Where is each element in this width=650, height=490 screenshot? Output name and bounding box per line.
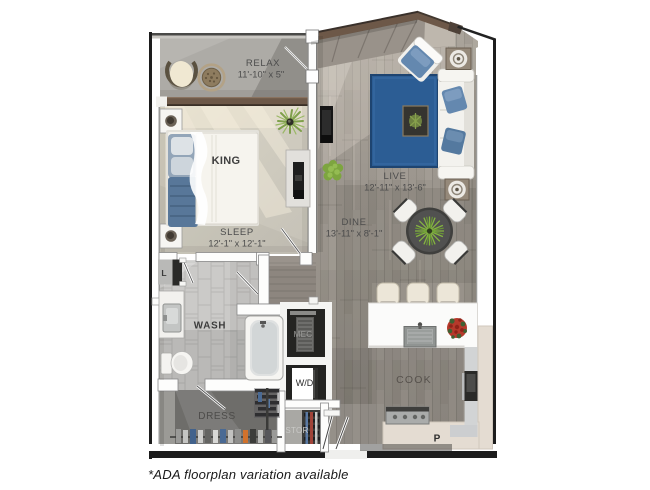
svg-text:P: P: [434, 434, 441, 445]
svg-text:W/D: W/D: [296, 378, 314, 388]
svg-text:*ADA floorplan variation avail: *ADA floorplan variation available: [148, 467, 349, 482]
svg-text:WASH: WASH: [194, 321, 227, 332]
svg-text:DRESS: DRESS: [198, 411, 235, 422]
svg-text:DINE: DINE: [341, 217, 366, 228]
svg-text:LIVE: LIVE: [384, 171, 407, 182]
svg-text:STOR: STOR: [285, 426, 308, 435]
svg-text:COOK: COOK: [396, 374, 432, 386]
svg-text:13'-11" x 8'-1": 13'-11" x 8'-1": [326, 229, 383, 239]
svg-text:12'-1" x 12'-1": 12'-1" x 12'-1": [208, 239, 265, 249]
svg-text:SLEEP: SLEEP: [220, 227, 254, 238]
svg-text:L: L: [161, 268, 166, 278]
svg-text:KING: KING: [212, 155, 241, 167]
svg-text:11'-10" x 5": 11'-10" x 5": [238, 70, 284, 80]
svg-text:RELAX: RELAX: [246, 58, 280, 69]
svg-text:MEC: MEC: [294, 330, 313, 339]
svg-text:12'-11" x 13'-6": 12'-11" x 13'-6": [364, 183, 426, 193]
